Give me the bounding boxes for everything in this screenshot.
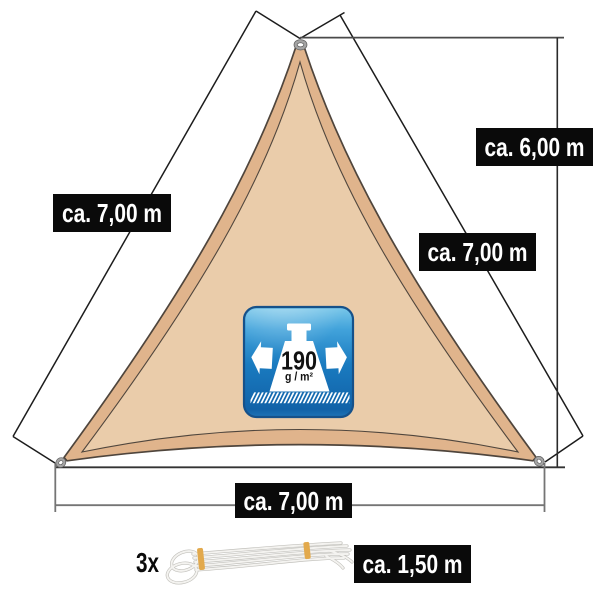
svg-text:ca. 7,00 m: ca. 7,00 m <box>244 486 344 516</box>
svg-text:ca. 7,00 m: ca. 7,00 m <box>62 198 162 228</box>
svg-text:3x: 3x <box>136 547 159 578</box>
svg-text:g / m²: g / m² <box>285 372 313 384</box>
svg-text:ca. 6,00 m: ca. 6,00 m <box>485 132 585 162</box>
svg-text:ca. 1,50 m: ca. 1,50 m <box>363 549 463 579</box>
svg-text:ca. 7,00 m: ca. 7,00 m <box>428 237 528 267</box>
